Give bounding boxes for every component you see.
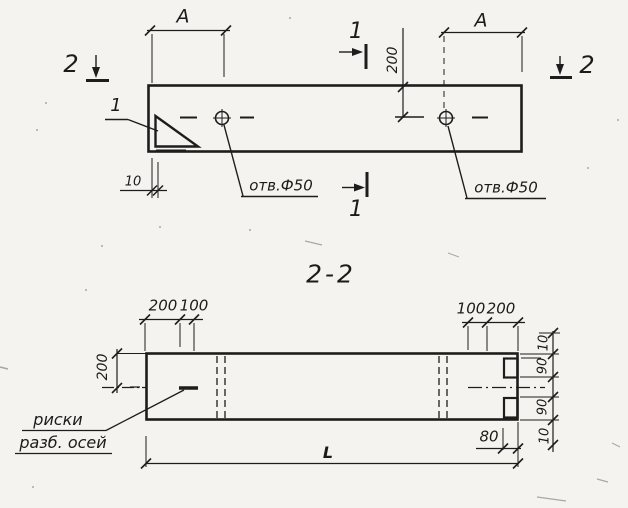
dim-label-100-top-right: 100 <box>457 302 486 317</box>
dim-label-a-right: A <box>475 12 488 31</box>
section-mark-1-top-label: 1 <box>349 21 363 43</box>
section-mark-1-bottom <box>342 172 367 197</box>
dim-label-length-l: L <box>323 445 333 461</box>
dimensions-top-left <box>139 315 203 352</box>
dimension-200-left-section <box>112 349 146 394</box>
dim-label-10-right-bottom: 10 <box>539 428 552 445</box>
drawing-linework <box>0 0 628 508</box>
dimension-a-left <box>145 26 231 84</box>
dim-label-80: 80 <box>479 430 498 445</box>
section-mark-2-left <box>86 55 109 81</box>
dim-label-200-half-height: 200 <box>96 354 110 381</box>
dim-label-200-top-left: 200 <box>149 299 178 314</box>
hole-right <box>437 109 455 127</box>
axes-note-line-2: разб. осей <box>19 435 106 451</box>
dim-label-10-top-view: 10 <box>125 176 142 189</box>
dim-label-200-top-right: 200 <box>487 302 516 317</box>
hidden-hole-lines <box>217 356 447 418</box>
top-view <box>86 26 572 199</box>
top-view-beam-outline <box>149 86 522 152</box>
detail-callout-1-label: 1 <box>110 97 121 115</box>
hole-label-right: отв.Ф50 <box>474 181 538 196</box>
dim-label-a-left: A <box>177 8 190 27</box>
section-mark-2-left-label: 2 <box>63 52 78 76</box>
dim-label-100-top-left: 100 <box>180 299 209 314</box>
section-title: 2-2 <box>306 262 356 287</box>
dimension-200-top-view <box>398 28 408 122</box>
dimensions-top-right <box>462 318 525 352</box>
hole-label-left: отв.Ф50 <box>249 179 313 194</box>
axes-note-line-1: риски <box>33 412 82 428</box>
dim-label-90-right-lower: 90 <box>537 399 550 416</box>
section-centreline <box>102 387 545 388</box>
dimension-a-right <box>439 28 527 111</box>
hole-left <box>213 109 231 127</box>
callout-1-leader <box>105 120 158 132</box>
corner-detail-triangle <box>156 116 199 151</box>
dim-label-10-right-top: 10 <box>538 335 551 352</box>
dim-label-200-top-view: 200 <box>386 47 400 74</box>
section-mark-2-right-label: 2 <box>579 53 594 77</box>
section-mark-1-top <box>339 44 366 69</box>
hole-axis-dashes <box>180 117 488 118</box>
section-mark-2-right <box>550 56 572 78</box>
dim-label-90-right-upper: 90 <box>537 358 550 375</box>
section-beam-outline <box>147 354 518 420</box>
scanned-technical-drawing: A A 1 1 2 2 200 1 10 отв.Ф50 отв.Ф50 2-2… <box>0 0 628 508</box>
section-mark-1-bottom-label: 1 <box>349 199 363 221</box>
